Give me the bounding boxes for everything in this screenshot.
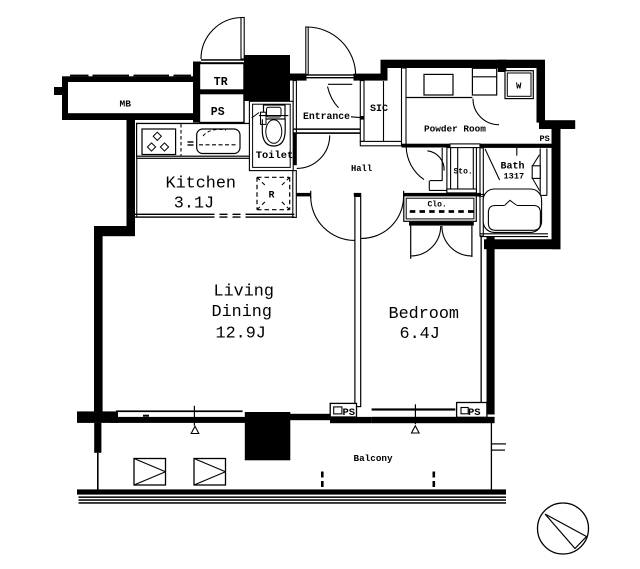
svg-text:Clo.: Clo. bbox=[428, 201, 447, 210]
svg-text:1317: 1317 bbox=[504, 171, 525, 181]
svg-text:Toilet: Toilet bbox=[256, 150, 293, 162]
svg-text:6.4J: 6.4J bbox=[400, 325, 440, 344]
svg-text:3.1J: 3.1J bbox=[174, 194, 214, 213]
svg-text:TR: TR bbox=[214, 76, 228, 89]
svg-text:MB: MB bbox=[120, 99, 132, 110]
svg-text:12.9J: 12.9J bbox=[216, 325, 266, 344]
svg-text:SIC: SIC bbox=[370, 104, 388, 115]
svg-text:R: R bbox=[269, 191, 275, 202]
svg-text:PS: PS bbox=[468, 407, 481, 419]
svg-text:PS: PS bbox=[343, 407, 356, 419]
svg-text:Kitchen: Kitchen bbox=[166, 174, 237, 193]
svg-text:Entrance: Entrance bbox=[303, 111, 350, 122]
svg-text:Powder Room: Powder Room bbox=[424, 123, 486, 134]
svg-text:Bedroom: Bedroom bbox=[389, 305, 460, 324]
svg-text:PS: PS bbox=[540, 134, 550, 144]
svg-text:Living: Living bbox=[214, 283, 274, 302]
svg-text:PS: PS bbox=[211, 106, 225, 119]
svg-text:Dining: Dining bbox=[212, 303, 272, 322]
svg-text:Hall: Hall bbox=[351, 164, 372, 174]
svg-text:Balcony: Balcony bbox=[354, 453, 393, 464]
svg-text:W: W bbox=[516, 82, 522, 92]
svg-text:Sto.: Sto. bbox=[454, 168, 473, 177]
